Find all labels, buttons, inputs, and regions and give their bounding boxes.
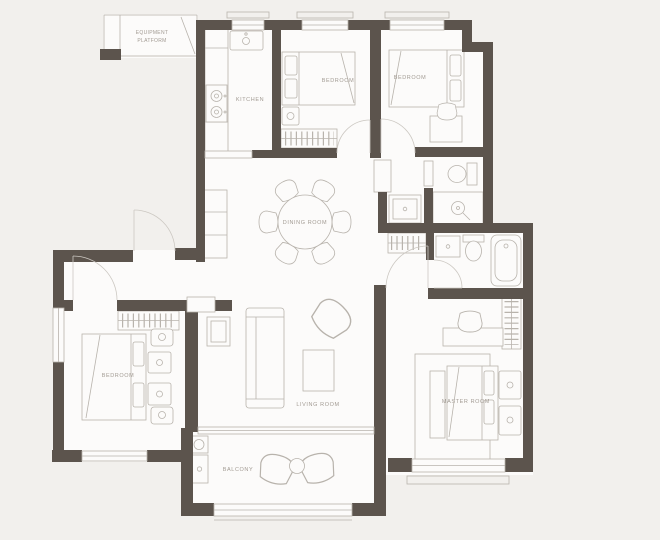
nightstand bbox=[148, 352, 171, 373]
coffee-table bbox=[303, 350, 334, 391]
pillow bbox=[450, 80, 461, 101]
nightstand bbox=[282, 107, 299, 125]
washbasin bbox=[436, 236, 460, 257]
wall-niche-cabinet bbox=[187, 297, 215, 312]
window bbox=[53, 308, 64, 362]
room-label: KITCHEN bbox=[236, 97, 264, 103]
window bbox=[82, 451, 147, 461]
kitchen-sink bbox=[230, 31, 263, 50]
foyer-fixtures bbox=[204, 190, 227, 258]
room-label: BALCONY bbox=[223, 467, 254, 473]
toilet-tank bbox=[467, 163, 477, 185]
kitchen-threshold bbox=[205, 151, 252, 158]
room-label: MASTER ROOM bbox=[442, 399, 490, 405]
room-label: DINING ROOM bbox=[283, 220, 328, 226]
desk-chair bbox=[458, 311, 482, 332]
sofa bbox=[246, 308, 284, 408]
floor-plan: EQUIPMENT PLATFORM KITCHEN BEDROOM BEDRO… bbox=[0, 0, 660, 540]
nightstand bbox=[499, 406, 521, 435]
pillow bbox=[285, 79, 297, 98]
tall-cabinet bbox=[374, 160, 391, 192]
room-label: BEDROOM bbox=[394, 75, 427, 81]
pillow bbox=[133, 342, 144, 366]
balcony-table bbox=[290, 459, 305, 474]
nightstand bbox=[499, 371, 521, 399]
window bbox=[385, 12, 449, 30]
room-label: PLATFORM bbox=[137, 38, 166, 44]
window bbox=[214, 504, 352, 520]
desk-chair bbox=[437, 103, 457, 120]
room-label: BEDROOM bbox=[322, 78, 355, 84]
window bbox=[297, 12, 353, 30]
room-label: BEDROOM bbox=[102, 373, 135, 379]
floor-plan-page: EQUIPMENT PLATFORM KITCHEN BEDROOM BEDRO… bbox=[0, 0, 660, 540]
balcony-cabinet bbox=[191, 455, 208, 483]
pillow bbox=[484, 371, 494, 395]
wc-door-slab bbox=[424, 161, 433, 186]
toilet-bowl bbox=[466, 241, 482, 261]
toilet-bowl bbox=[448, 166, 466, 183]
corner-table bbox=[151, 407, 173, 424]
pillow bbox=[450, 55, 461, 76]
bathtub bbox=[491, 235, 521, 286]
room-label: EQUIPMENT bbox=[136, 30, 168, 36]
nightstand bbox=[148, 383, 171, 405]
room-label: LIVING ROOM bbox=[296, 402, 339, 408]
corner-table bbox=[151, 329, 173, 346]
dining-chair bbox=[259, 211, 278, 233]
shoe-cabinet bbox=[204, 190, 227, 258]
pillow bbox=[133, 383, 144, 407]
window bbox=[227, 12, 269, 30]
pillow bbox=[285, 56, 297, 75]
dining-chair bbox=[332, 211, 351, 233]
sliding-door bbox=[198, 427, 374, 434]
window bbox=[407, 459, 509, 484]
entry-door-swing bbox=[134, 210, 175, 251]
